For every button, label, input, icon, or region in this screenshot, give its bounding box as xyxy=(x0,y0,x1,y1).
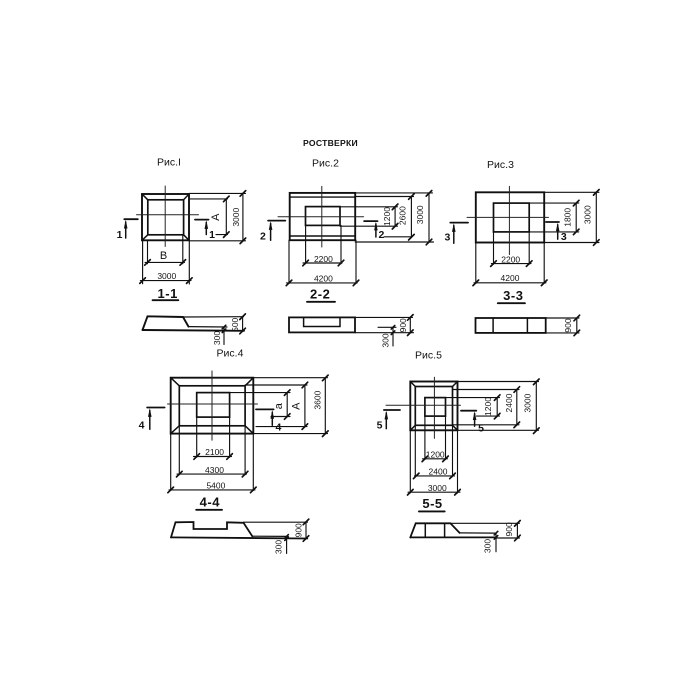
svg-text:4200: 4200 xyxy=(314,273,333,283)
svg-text:5: 5 xyxy=(377,420,383,432)
svg-text:5: 5 xyxy=(478,422,484,434)
svg-text:Рис.5: Рис.5 xyxy=(415,350,442,362)
svg-text:900: 900 xyxy=(563,318,573,332)
svg-text:300: 300 xyxy=(483,539,493,553)
svg-text:РОСТВЕРКИ: РОСТВЕРКИ xyxy=(303,138,358,148)
svg-text:2200: 2200 xyxy=(501,254,520,264)
svg-text:A: A xyxy=(210,213,222,221)
svg-text:1200: 1200 xyxy=(426,450,445,460)
svg-text:300: 300 xyxy=(273,540,283,554)
svg-text:3000: 3000 xyxy=(415,205,425,224)
svg-text:1800: 1800 xyxy=(562,208,572,227)
svg-text:1200: 1200 xyxy=(382,207,392,226)
svg-text:Рис.2: Рис.2 xyxy=(312,158,339,170)
svg-text:2400: 2400 xyxy=(504,393,514,412)
svg-text:2400: 2400 xyxy=(429,466,448,476)
svg-text:900: 900 xyxy=(398,318,408,332)
svg-text:900: 900 xyxy=(294,523,304,537)
svg-text:4-4: 4-4 xyxy=(200,494,221,509)
svg-text:2600: 2600 xyxy=(398,206,408,225)
svg-text:3600: 3600 xyxy=(312,390,322,409)
svg-text:5-5: 5-5 xyxy=(422,496,442,511)
svg-text:4300: 4300 xyxy=(205,465,224,475)
svg-text:3-3: 3-3 xyxy=(503,288,523,303)
svg-text:2-2: 2-2 xyxy=(310,286,330,301)
svg-text:1-1: 1-1 xyxy=(158,286,178,301)
svg-text:4200: 4200 xyxy=(501,273,520,283)
svg-text:300: 300 xyxy=(380,333,390,347)
svg-text:300: 300 xyxy=(212,331,222,345)
svg-text:A: A xyxy=(291,402,303,410)
svg-text:2200: 2200 xyxy=(314,254,333,264)
svg-text:1200: 1200 xyxy=(483,397,493,416)
svg-text:3: 3 xyxy=(561,231,567,243)
svg-text:3000: 3000 xyxy=(523,393,533,412)
svg-text:2: 2 xyxy=(378,229,384,241)
svg-text:1: 1 xyxy=(209,229,215,241)
svg-text:500: 500 xyxy=(230,317,240,331)
svg-text:3000: 3000 xyxy=(157,271,176,281)
svg-text:2100: 2100 xyxy=(205,447,224,457)
svg-text:a: a xyxy=(273,402,285,409)
svg-text:3000: 3000 xyxy=(428,483,447,493)
svg-text:5400: 5400 xyxy=(206,481,225,491)
svg-text:3000: 3000 xyxy=(231,207,241,226)
svg-text:Рис.3: Рис.3 xyxy=(487,159,514,171)
svg-text:900: 900 xyxy=(504,522,514,536)
svg-text:4: 4 xyxy=(139,420,145,432)
svg-text:1: 1 xyxy=(117,229,123,241)
svg-text:В: В xyxy=(160,250,167,262)
svg-text:4: 4 xyxy=(275,421,281,433)
svg-text:3: 3 xyxy=(444,231,450,243)
svg-text:2: 2 xyxy=(260,231,266,243)
svg-text:Рис.I: Рис.I xyxy=(157,157,181,169)
svg-text:3000: 3000 xyxy=(583,205,593,224)
svg-text:Рис.4: Рис.4 xyxy=(217,348,244,360)
